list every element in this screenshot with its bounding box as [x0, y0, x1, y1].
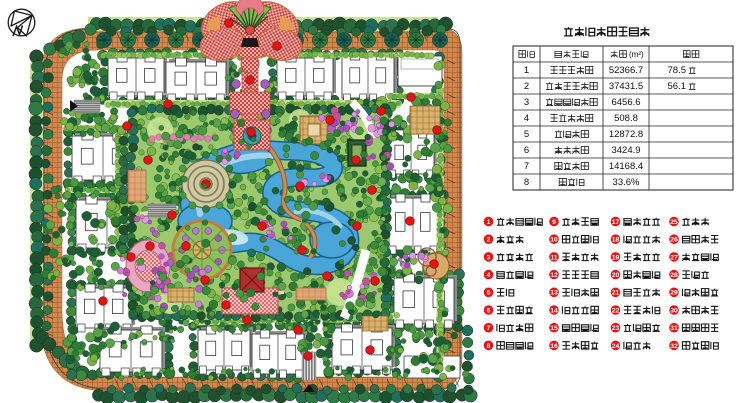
svg-text:1: 1 [487, 219, 491, 226]
svg-text:24: 24 [612, 343, 620, 350]
svg-text:2: 2 [524, 81, 529, 92]
svg-text:8: 8 [487, 343, 491, 350]
svg-text:14: 14 [550, 307, 558, 314]
svg-text:19: 19 [612, 254, 620, 261]
svg-text:37431.5: 37431.5 [609, 81, 643, 92]
svg-text:6: 6 [524, 145, 529, 156]
svg-text:21: 21 [612, 290, 620, 297]
svg-text:8: 8 [524, 177, 529, 188]
svg-text:18: 18 [612, 237, 620, 244]
svg-text:7: 7 [524, 161, 529, 172]
svg-text:31: 31 [670, 325, 678, 332]
svg-text:20: 20 [612, 272, 620, 279]
svg-text:11: 11 [550, 254, 557, 261]
svg-text:13: 13 [550, 290, 558, 297]
svg-text:1: 1 [524, 65, 529, 76]
svg-text:508.8: 508.8 [614, 113, 638, 124]
svg-text:26: 26 [670, 237, 678, 244]
svg-text:17: 17 [612, 219, 620, 226]
svg-text:29: 29 [670, 290, 678, 297]
svg-text:6: 6 [487, 307, 491, 314]
svg-text:5: 5 [487, 290, 491, 297]
svg-text:9: 9 [552, 219, 556, 226]
svg-text:2: 2 [487, 237, 491, 244]
svg-text:16: 16 [550, 343, 558, 350]
svg-text:6456.6: 6456.6 [611, 97, 640, 108]
svg-text:32: 32 [670, 343, 678, 350]
svg-text:78.5: 78.5 [668, 65, 687, 76]
svg-text:4: 4 [524, 113, 529, 124]
svg-text:25: 25 [670, 219, 678, 226]
svg-text:4: 4 [487, 272, 491, 279]
svg-text:3: 3 [487, 254, 491, 261]
svg-text:56.1: 56.1 [668, 81, 687, 92]
svg-text:14168.4: 14168.4 [609, 161, 643, 172]
svg-text:22: 22 [612, 307, 620, 314]
svg-text:12872.8: 12872.8 [609, 129, 643, 140]
svg-text:(m²): (m²) [629, 50, 644, 59]
svg-text:15: 15 [550, 325, 558, 332]
svg-text:33.6%: 33.6% [613, 177, 640, 188]
svg-text:30: 30 [670, 307, 678, 314]
svg-text:28: 28 [670, 272, 678, 279]
svg-text:7: 7 [487, 325, 491, 332]
svg-text:23: 23 [612, 325, 620, 332]
svg-text:27: 27 [670, 254, 678, 261]
svg-text:3424.9: 3424.9 [611, 145, 640, 156]
svg-text:52366.7: 52366.7 [609, 65, 643, 76]
svg-text:3: 3 [524, 97, 529, 108]
svg-text:5: 5 [524, 129, 529, 140]
svg-text:10: 10 [550, 237, 558, 244]
svg-text:12: 12 [550, 272, 558, 279]
